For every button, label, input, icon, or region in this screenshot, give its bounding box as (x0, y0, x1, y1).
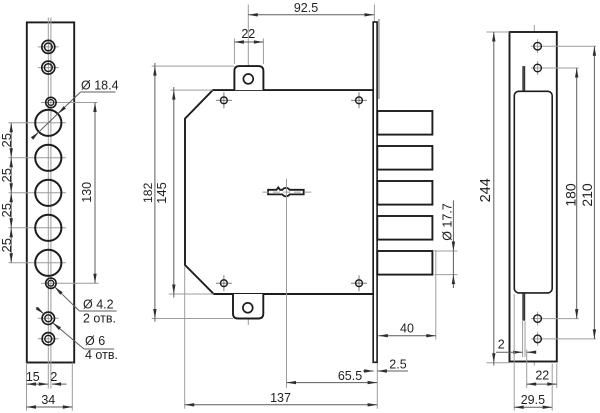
svg-text:15: 15 (26, 370, 40, 384)
svg-text:182: 182 (141, 182, 155, 203)
svg-text:145: 145 (154, 182, 169, 204)
svg-text:2 отв.: 2 отв. (83, 312, 116, 326)
svg-text:210: 210 (579, 183, 595, 207)
svg-text:29.5: 29.5 (521, 393, 545, 407)
svg-text:25: 25 (0, 203, 14, 217)
svg-text:130: 130 (80, 182, 94, 203)
svg-text:4 отв.: 4 отв. (85, 348, 118, 362)
svg-text:22: 22 (535, 368, 549, 382)
svg-text:2.5: 2.5 (389, 358, 406, 372)
svg-text:25: 25 (0, 133, 14, 147)
svg-text:22: 22 (241, 27, 255, 41)
svg-text:65.5: 65.5 (338, 369, 362, 383)
svg-text:92.5: 92.5 (294, 1, 318, 15)
svg-text:40: 40 (400, 322, 414, 336)
svg-text:Ø 18.4: Ø 18.4 (81, 78, 119, 92)
svg-text:25: 25 (0, 238, 14, 252)
svg-text:2: 2 (498, 338, 505, 352)
svg-text:34: 34 (41, 393, 55, 407)
svg-text:244: 244 (478, 178, 494, 202)
svg-text:Ø 6: Ø 6 (85, 334, 105, 348)
svg-text:25: 25 (0, 168, 14, 182)
svg-text:Ø 4.2: Ø 4.2 (83, 297, 114, 311)
svg-text:137: 137 (270, 391, 291, 405)
svg-text:Ø 17.7: Ø 17.7 (440, 203, 454, 241)
svg-text:2: 2 (50, 370, 57, 384)
svg-text:180: 180 (563, 183, 579, 207)
